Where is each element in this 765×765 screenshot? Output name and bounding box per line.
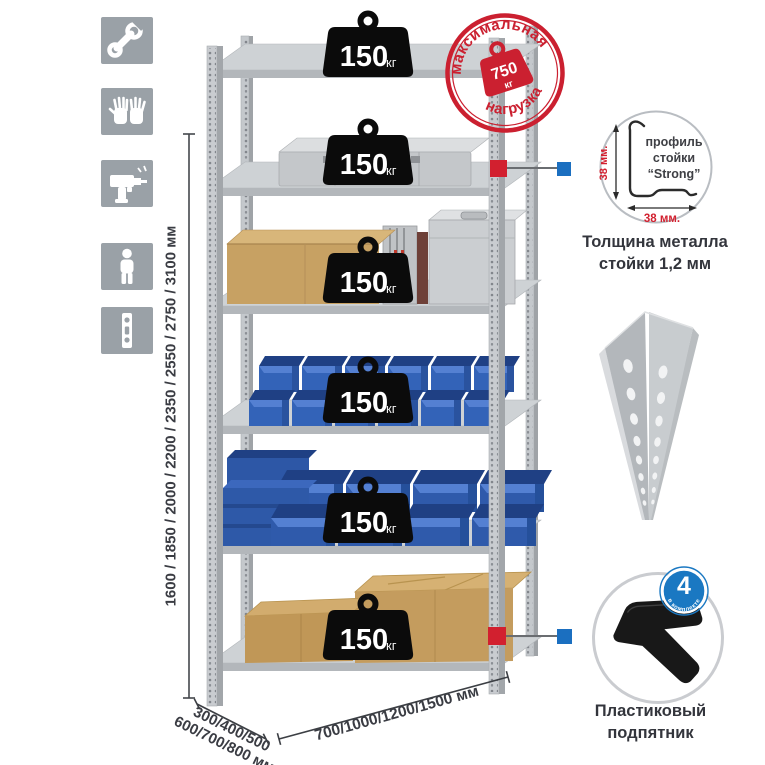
load-value: 150 (340, 149, 388, 181)
load-value: 150 (340, 387, 388, 419)
shelf-load-weight-5: 150 кг (322, 476, 414, 546)
badge-value: 4 (677, 572, 691, 600)
load-value: 150 (340, 41, 388, 73)
metal-thickness-caption: Толщина металла стойки 1,2 мм (572, 231, 738, 275)
shelf-load-weight-3: 150 кг (322, 236, 414, 306)
kit-quantity-badge: 4 в комплекте (658, 565, 710, 617)
infographic-page: { "colors": { "accent_red": "#d2202f", "… (0, 0, 765, 765)
load-unit: кг (386, 638, 397, 653)
post-callout-marker-top (490, 160, 507, 177)
profile-label-1: профиль (645, 135, 702, 149)
plastic-foot-caption: Пластиковый подпятник (573, 700, 728, 744)
load-value: 150 (340, 624, 388, 656)
shelf-load-weight-4: 150 кг (322, 356, 414, 426)
shelf-load-weight-1: 150 кг (322, 10, 414, 80)
max-load-stamp: максимальная нагрузка 750 кг (444, 12, 566, 134)
load-value: 150 (340, 507, 388, 539)
load-unit: кг (386, 163, 397, 178)
metal-thickness-caption-line2: стойки 1,2 мм (572, 253, 738, 275)
profile-dim-horizontal: 38 мм. (644, 213, 680, 225)
angle-post-image (597, 302, 701, 527)
post-callout-marker-bottom (488, 627, 506, 645)
plastic-foot-caption-line2: подпятник (573, 722, 728, 744)
profile-dim-vertical: 38 мм. (598, 146, 610, 181)
detail-callout-marker-bottom (557, 629, 572, 644)
post-profile-detail: 38 мм. 38 мм. профиль стойки “Strong” (590, 106, 725, 231)
shelf-load-weight-6: 150 кг (322, 593, 414, 663)
load-unit: кг (386, 401, 397, 416)
metal-thickness-caption-line1: Толщина металла (572, 231, 738, 253)
plastic-foot-caption-line1: Пластиковый (573, 700, 728, 722)
shelf-load-weight-2: 150 кг (322, 118, 414, 188)
load-unit: кг (386, 281, 397, 296)
detail-callout-marker-top (557, 162, 571, 176)
profile-label-2: стойки (653, 151, 695, 165)
load-unit: кг (386, 55, 397, 70)
load-unit: кг (386, 521, 397, 536)
profile-label-3: “Strong” (648, 167, 701, 181)
load-value: 150 (340, 267, 388, 299)
